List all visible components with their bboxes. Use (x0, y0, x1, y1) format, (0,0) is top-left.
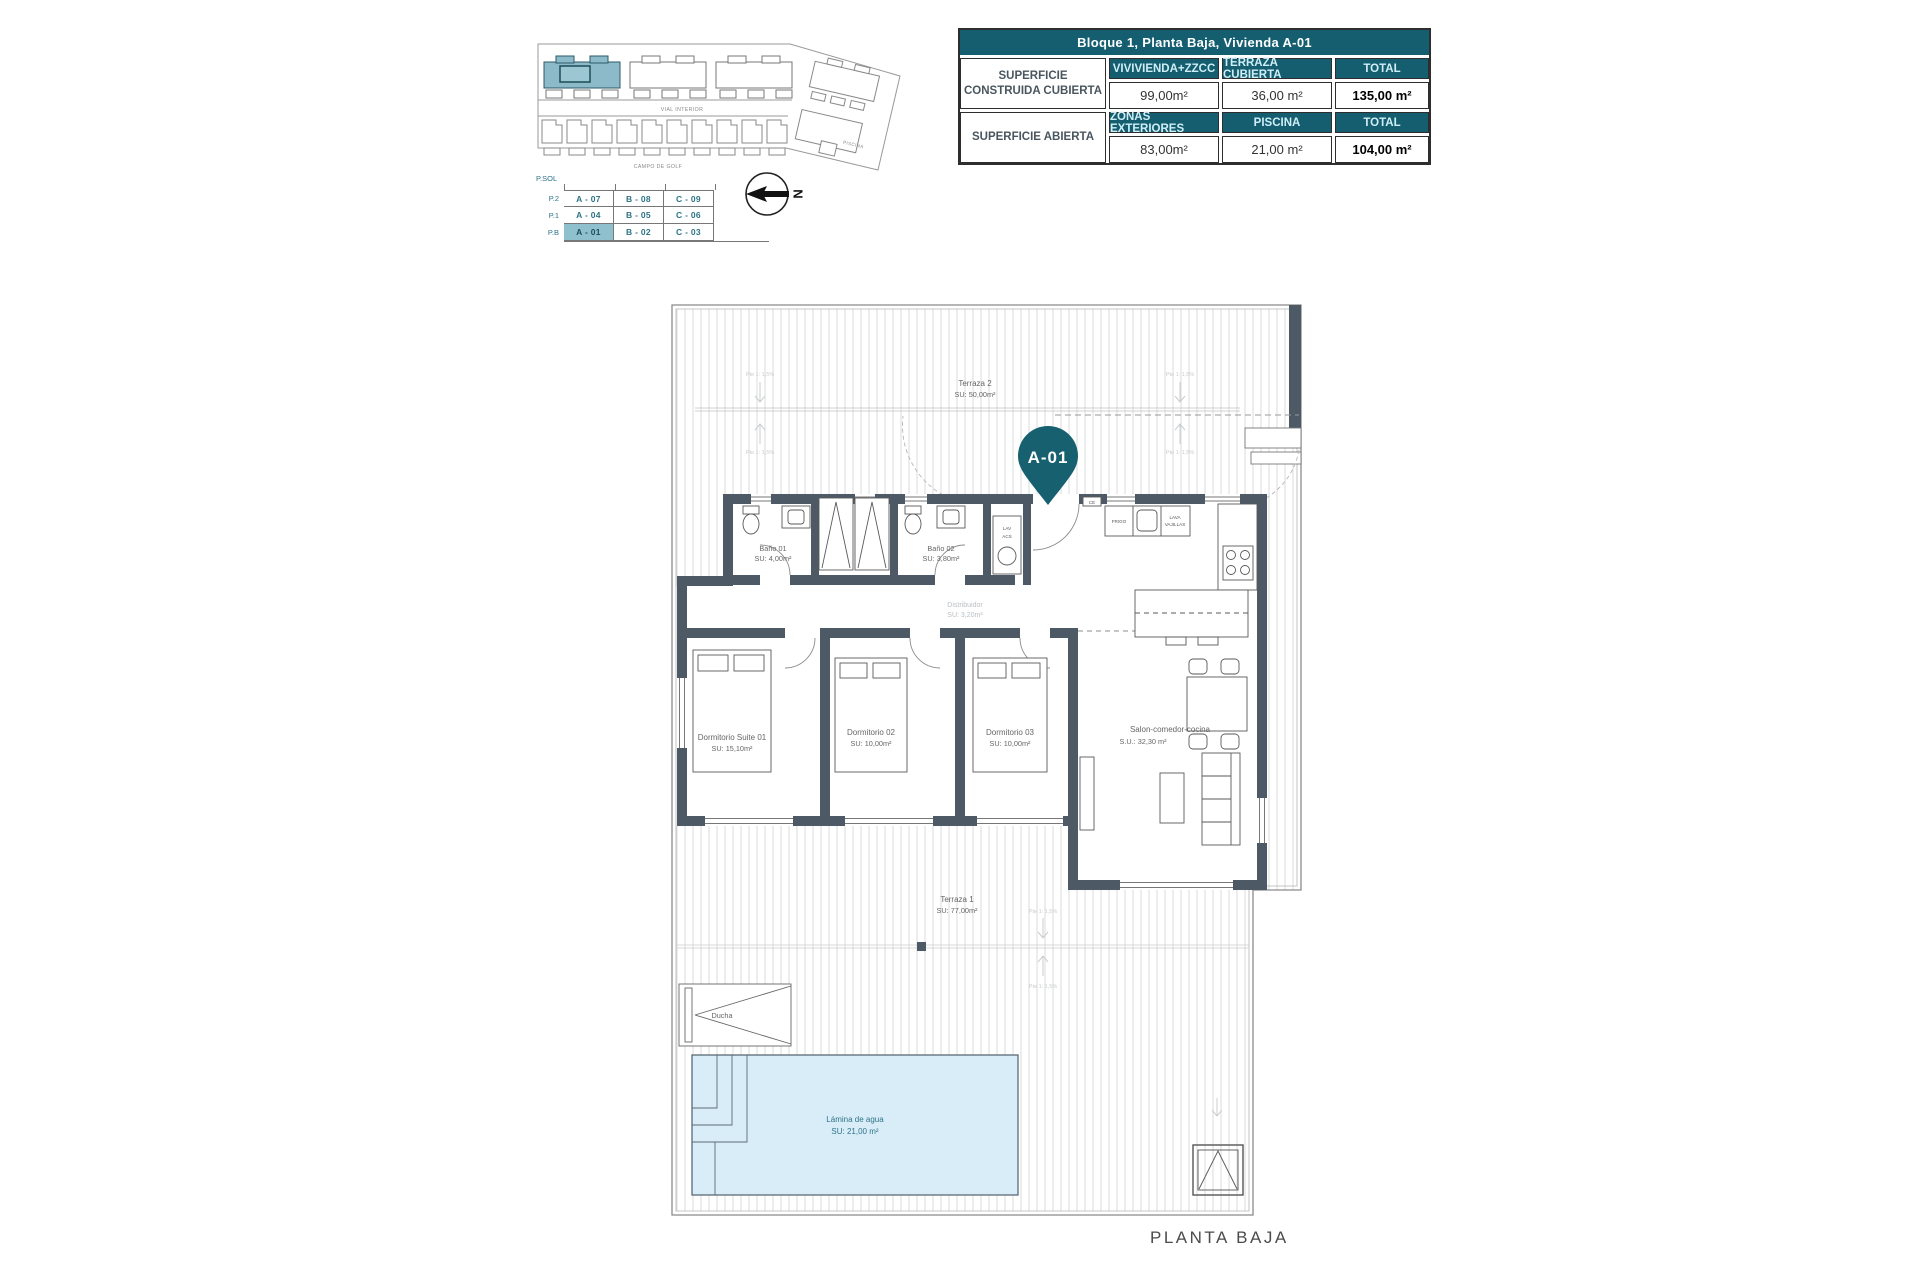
coffee-table (1160, 773, 1184, 823)
bano01-label: Baño 01 (759, 544, 786, 553)
summary-section-label-open: SUPERFICIE ABIERTA (960, 112, 1106, 163)
col-header: TERRAZA CUBIERTA (1222, 58, 1332, 79)
unit-cell: A - 07 (564, 190, 614, 207)
ce-label: CE (1089, 500, 1095, 505)
levels-row-pb: P.B A - 01 B - 02 C - 03 (534, 224, 744, 241)
col-header: PISCINA (1222, 112, 1332, 133)
golf-label: CAMPO DE GOLF (634, 164, 682, 170)
terraza2-label: Terraza 2 (958, 379, 992, 388)
kitchen-island (1135, 590, 1248, 645)
bano01-area: SU: 4,00m² (755, 554, 792, 563)
bano02-label: Baño 02 (927, 544, 954, 553)
unit-cell: A - 04 (564, 207, 614, 224)
kitchen-counter (1105, 504, 1257, 590)
value-cell: 83,00m² (1109, 136, 1219, 163)
unit-cell: B - 02 (614, 224, 664, 241)
svg-text:Pte 1: 1,5%: Pte 1: 1,5% (1166, 372, 1195, 378)
svg-text:Pte 1: 1,5%: Pte 1: 1,5% (1029, 909, 1058, 915)
unit-cell: B - 05 (614, 207, 664, 224)
value-cell: 21,00 m² (1222, 136, 1332, 163)
unit-cell: C - 03 (664, 224, 714, 241)
col-header: TOTAL (1335, 58, 1429, 79)
site-right-section (793, 55, 880, 162)
terraza2-area: SU: 50,00m² (955, 390, 997, 399)
ducha-label: Ducha (711, 1011, 733, 1020)
acs-label: ACS (1002, 534, 1011, 539)
bed-dorm03 (973, 658, 1047, 772)
column (917, 942, 926, 951)
level-label: P.1 (534, 207, 564, 224)
parking-row-bottom (544, 148, 785, 155)
laundry-closet (993, 516, 1021, 574)
dorm03-label: Dormitorio 03 (986, 728, 1035, 737)
site-plan: VIAL INTERIOR CAMPO DE GOLF PISCINA (530, 20, 942, 178)
salon-label: Salon-comedor-cocina (1130, 725, 1211, 734)
svg-text:Pte 1: 1,5%: Pte 1: 1,5% (746, 450, 775, 456)
sink (937, 506, 965, 528)
site-buildings-top (544, 56, 792, 98)
salon-area: S.U.: 32,30 m² (1119, 737, 1167, 746)
levels-row-p2: P.2 A - 07 B - 08 C - 09 (534, 190, 744, 207)
sink (782, 506, 810, 528)
level-label: P.B (534, 224, 564, 241)
value-cell: 36,00 m² (1222, 82, 1332, 109)
unit-cell: C - 06 (664, 207, 714, 224)
levels-baseline (564, 241, 769, 242)
terraza1-area: SU: 77,00m² (937, 906, 979, 915)
total-value-cell: 135,00 m² (1335, 82, 1429, 109)
building-bl1 (544, 56, 620, 88)
plan-sheet: { "colors": { "accent_teal": "#145e70", … (0, 0, 1920, 1280)
plan-title: PLANTA BAJA (1150, 1228, 1289, 1248)
entrance-door-arc (1033, 504, 1079, 550)
vajillas-label: VAJILLAS (1165, 522, 1186, 527)
levels-sol-label: P.SOL (536, 174, 744, 183)
levels-row-p1: P.1 A - 04 B - 05 C - 06 (534, 207, 744, 224)
outdoor-shower: Ducha (679, 984, 791, 1046)
pool: Lámina de agua SU: 21,00 m² (692, 1055, 1018, 1195)
dorm02-label: Dormitorio 02 (847, 728, 896, 737)
floor-plan: Pte 1: 1,5% Pte 1: 1,5% Pte 1: 1,5% Pte … (665, 298, 1325, 1258)
svg-text:Pte 1: 1,5%: Pte 1: 1,5% (746, 372, 775, 378)
distribuidor-label: Distribuidor (947, 602, 983, 609)
pin-label: A-01 (1028, 448, 1069, 467)
summary-section-label-covered: SUPERFICIE CONSTRUIDA CUBIERTA (960, 58, 1106, 109)
toilet (905, 506, 921, 534)
wardrobe (819, 498, 889, 570)
north-letter: N (791, 189, 806, 198)
level-label: P.2 (534, 190, 564, 207)
unit-cell-highlighted: A - 01 (564, 224, 614, 241)
bano02-area: SU: 3,80m² (923, 554, 960, 563)
lava-label: LAVA (1169, 515, 1181, 520)
pool-label: Lámina de agua (826, 1115, 884, 1124)
north-arrow: N (740, 168, 812, 222)
bed-suite (693, 650, 771, 772)
col-header: ZONAS EXTERIORES (1109, 112, 1219, 133)
distribuidor-area: SU: 3,20m² (947, 612, 983, 619)
toilet (743, 506, 759, 534)
boundary-wall (1289, 305, 1301, 428)
dining-table (1187, 659, 1247, 749)
frigo-label: FRIGO (1112, 519, 1127, 524)
svg-text:Pte 1: 1,5%: Pte 1: 1,5% (1166, 450, 1195, 456)
suite-area: SU: 15,10m² (712, 744, 754, 753)
dorm03-area: SU: 10,00m² (990, 739, 1032, 748)
parking-row-top (546, 90, 792, 98)
col-header: VIVIVIENDA+ZZCC (1109, 58, 1219, 79)
col-header: TOTAL (1335, 112, 1429, 133)
surface-summary-table: Bloque 1, Planta Baja, Vivienda A-01 SUP… (958, 28, 1431, 165)
terraza1-label: Terraza 1 (940, 895, 974, 904)
value-cell: 99,00m² (1109, 82, 1219, 109)
lav-label: LAV (1003, 526, 1012, 531)
unit-cell: C - 09 (664, 190, 714, 207)
road-label: VIAL INTERIOR (661, 107, 703, 113)
site-houses (542, 120, 787, 155)
pool-area: SU: 21,00 m² (831, 1127, 878, 1136)
dorm02-area: SU: 10,00m² (851, 739, 893, 748)
bed-dorm02 (835, 658, 907, 772)
levels-table: P.SOL P.2 A - 07 B - 08 C - 09 P.1 A - 0… (534, 174, 744, 242)
svg-text:Pte 1: 1,5%: Pte 1: 1,5% (1029, 984, 1058, 990)
suite-label: Dormitorio Suite 01 (698, 733, 767, 742)
summary-title: Bloque 1, Planta Baja, Vivienda A-01 (960, 30, 1429, 55)
unit-cell: B - 08 (614, 190, 664, 207)
tv-unit (1080, 757, 1094, 830)
total-value-cell: 104,00 m² (1335, 136, 1429, 163)
sofa (1202, 753, 1240, 845)
